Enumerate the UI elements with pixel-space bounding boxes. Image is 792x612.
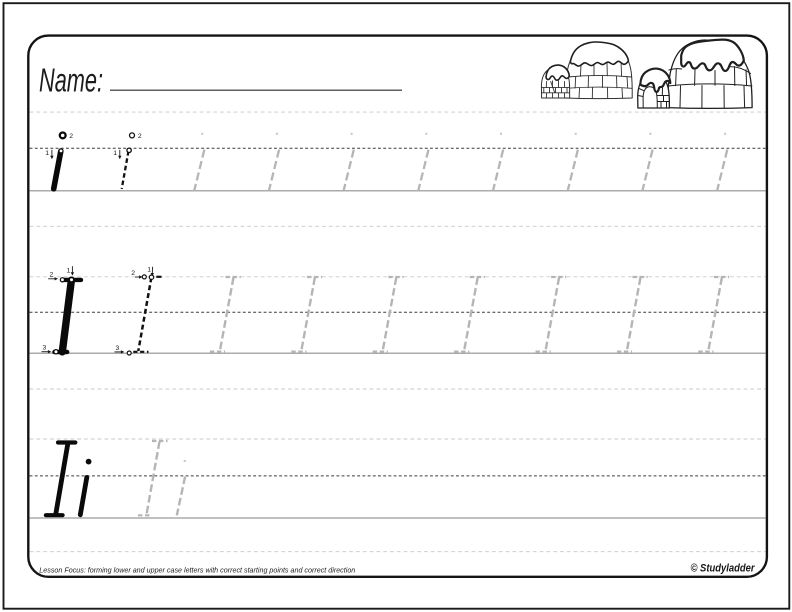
svg-text:2: 2 <box>50 271 54 278</box>
svg-text:2: 2 <box>138 133 142 140</box>
svg-text:3: 3 <box>116 345 120 352</box>
svg-text:2: 2 <box>131 270 135 277</box>
svg-text:1: 1 <box>113 150 117 157</box>
svg-text:1: 1 <box>67 267 71 274</box>
svg-text:1: 1 <box>45 150 49 157</box>
svg-text:2: 2 <box>69 133 73 140</box>
svg-text:Name:: Name: <box>39 63 103 100</box>
svg-text:1: 1 <box>147 267 151 274</box>
svg-text:© Studyladder: © Studyladder <box>691 563 756 575</box>
svg-text:Lesson Focus: forming lower an: Lesson Focus: forming lower and upper ca… <box>39 566 355 575</box>
svg-text:3: 3 <box>43 345 47 352</box>
